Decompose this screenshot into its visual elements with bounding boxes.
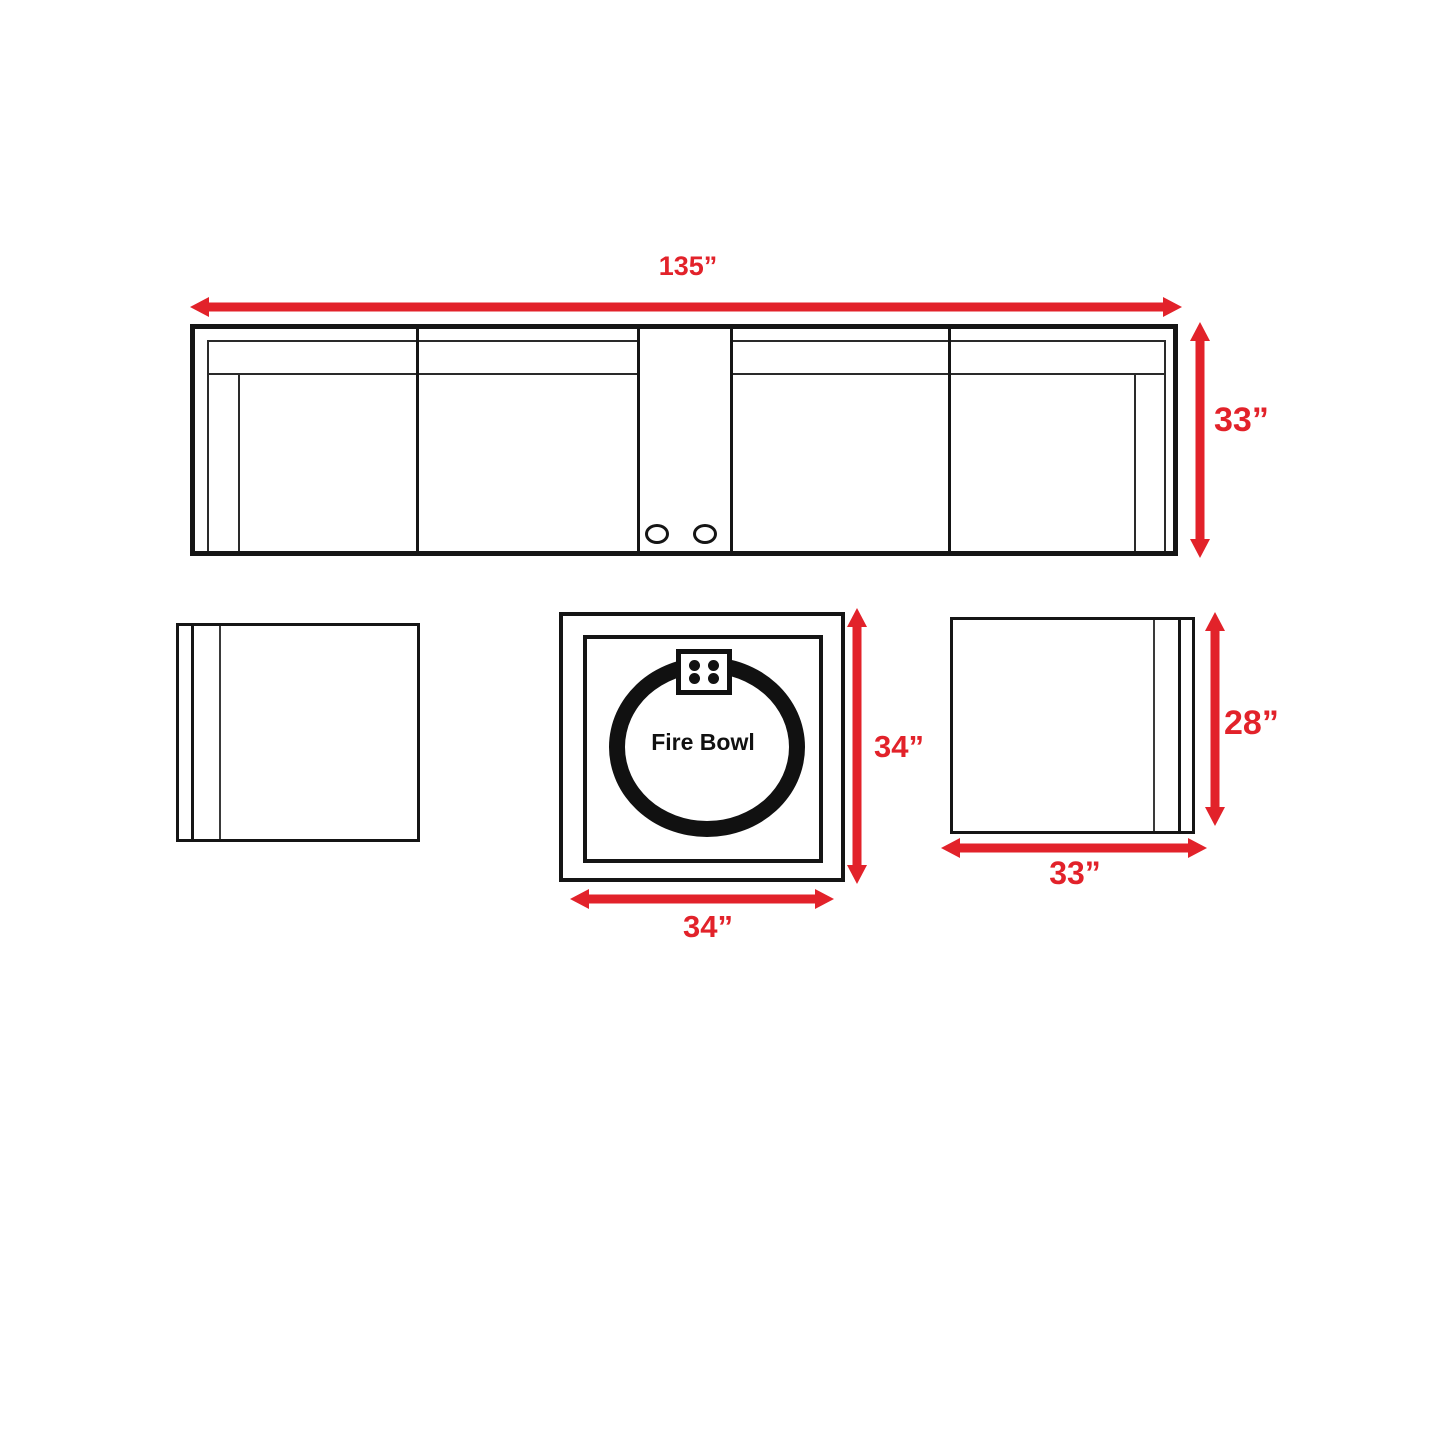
arrow-shaft [1196, 338, 1205, 542]
table-edge-line [191, 626, 194, 839]
arrow-shaft [853, 624, 862, 868]
arrow-shaft [206, 303, 1166, 312]
fire-table-depth-dimension-arrow [845, 608, 869, 884]
right-table-height-dimension-label: 28” [1224, 705, 1279, 742]
side-table-left-top-view [176, 623, 420, 842]
sofa-width-dimension-label: 135” [608, 252, 768, 282]
sofa-right-seat-divider [948, 329, 951, 551]
arrow-right-head [1188, 838, 1207, 858]
sofa-left-armrest-line [238, 373, 240, 551]
sofa-left-seat-divider [416, 329, 419, 551]
sofa-depth-dimension-label: 33” [1214, 402, 1269, 439]
table-edge-line [219, 626, 221, 839]
fire-bowl-label: Fire Bowl [587, 729, 819, 756]
arrow-right-head [1163, 297, 1182, 317]
cup-holder [645, 524, 669, 544]
sofa-width-dimension-arrow [190, 295, 1182, 319]
burner-control-box [676, 649, 732, 695]
table-edge-line [1153, 620, 1155, 831]
sofa-top-view [190, 324, 1178, 556]
arrow-right-head [815, 889, 834, 909]
fire-pit-table-inner-top: Fire Bowl [583, 635, 823, 863]
fire-pit-table-top-view: Fire Bowl [559, 612, 845, 882]
furniture-dimension-diagram: 135” 33” Fire [0, 0, 1445, 1445]
sofa-right-armrest-line [1134, 375, 1136, 551]
arrow-bottom-head [1190, 539, 1210, 558]
cup-holder [693, 524, 717, 544]
sofa-depth-dimension-arrow [1188, 322, 1212, 558]
table-edge-line [1178, 620, 1181, 831]
fire-table-depth-dimension-label: 34” [874, 730, 924, 764]
fire-table-width-dimension-label: 34” [648, 910, 768, 944]
right-table-width-dimension-label: 33” [1015, 856, 1135, 891]
burner-port-dot [689, 673, 700, 684]
burner-port-dot [708, 660, 719, 671]
burner-port-dot [689, 660, 700, 671]
sofa-center-console [637, 329, 733, 551]
fire-table-width-dimension-arrow [570, 887, 834, 911]
arrow-shaft [1211, 628, 1220, 810]
burner-port-dot [708, 673, 719, 684]
arrow-bottom-head [847, 865, 867, 884]
arrow-bottom-head [1205, 807, 1225, 826]
side-table-right-top-view [950, 617, 1195, 834]
arrow-shaft [957, 844, 1191, 853]
arrow-shaft [586, 895, 818, 904]
